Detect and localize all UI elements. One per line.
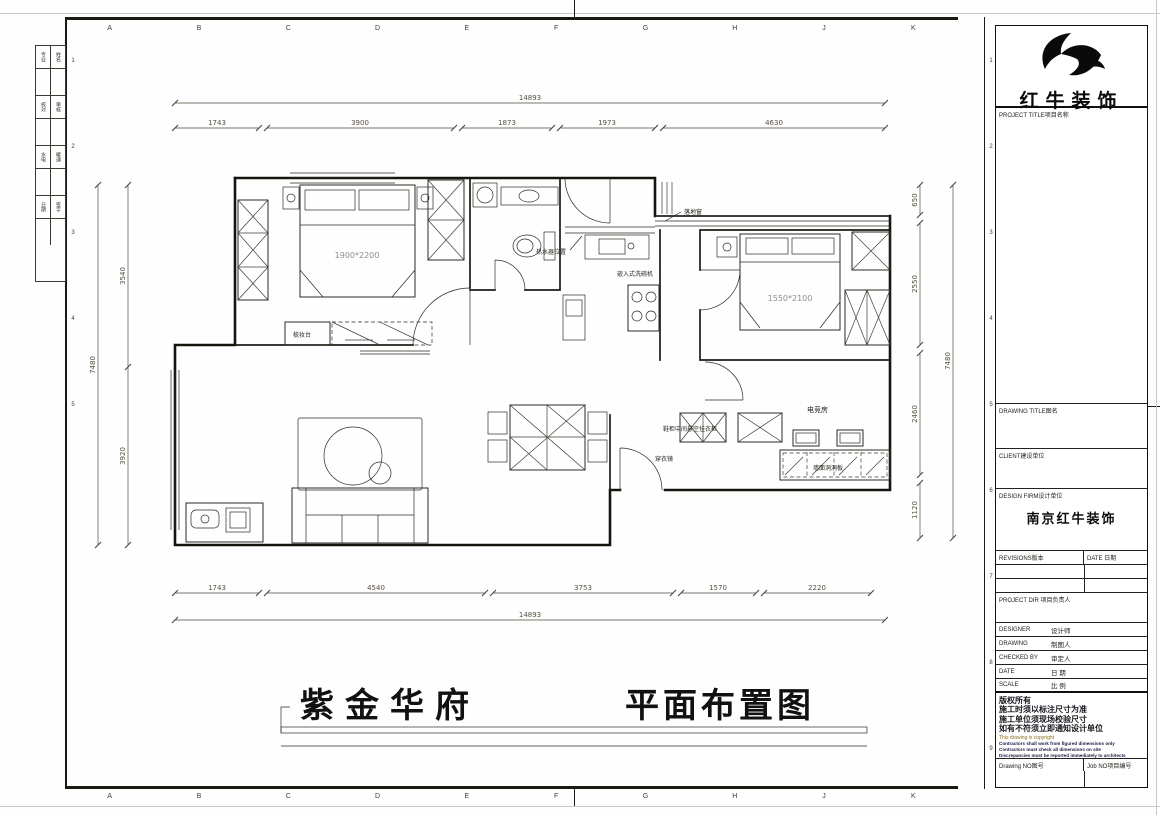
scale-label-cn: 比 例 <box>1051 680 1066 690</box>
bed-master <box>300 185 415 297</box>
dim: 4540 <box>367 584 385 592</box>
grid-number: 6 <box>987 488 995 494</box>
dim: 1120 <box>911 501 919 519</box>
drawing-sheet: A B C D E F G H J K A B C D E F G H J K … <box>0 0 1160 815</box>
living-room <box>186 418 428 543</box>
grid-number: 2 <box>987 144 995 150</box>
strip-cell-empty <box>51 169 65 195</box>
sheet-titles: 紫金华府 平面布置图 <box>281 686 867 746</box>
dresser: 梳妆台 <box>285 322 432 354</box>
frame-right-border <box>984 17 985 789</box>
strip-cell: 审核 <box>51 96 65 118</box>
drawing-no-label: Drawing NO图号 <box>996 759 1084 771</box>
pegboard-label: 墙面洞洞板 <box>813 464 843 472</box>
shoe-cabinet-label: 鞋柜中间悬空挂衣柜 <box>663 425 717 433</box>
mirror-label: 穿衣镜 <box>655 455 673 463</box>
top-shadow-line <box>0 13 1160 14</box>
scale-label-en: SCALE <box>996 682 1051 688</box>
note-cn: 施工时须以标注尺寸为准 <box>999 705 1145 714</box>
kitchen: 热水器位置 嵌入式洗碗机 <box>536 227 659 340</box>
dim-left-total: 7480 <box>89 356 97 374</box>
grid-letter: C <box>244 790 333 803</box>
drawing-label-en: DRAWING <box>996 641 1051 647</box>
bed-master-size: 1900*2200 <box>335 251 380 260</box>
frame-bottom-border <box>65 786 958 789</box>
signature-strip: 专业姓名 校对审核 水电暖通 日期签字 <box>35 45 66 282</box>
dims-right: 650 2550 2460 1120 7480 <box>911 182 956 541</box>
drawing-row: DRAWING 制图人 <box>996 637 1147 651</box>
grid-letter: J <box>779 790 868 803</box>
revisions-table: REVISIONS版本 DATE 日期 <box>996 551 1147 593</box>
main-title-right: 平面布置图 <box>625 686 815 726</box>
client-section: CLIENT建设单位 <box>996 449 1147 489</box>
dim: 3920 <box>119 447 127 465</box>
dim: 2550 <box>911 275 919 293</box>
dresser-label: 梳妆台 <box>293 331 311 339</box>
strip-cell: 专业 <box>36 46 51 68</box>
grid-number: 4 <box>987 316 995 322</box>
door-arcs <box>413 178 743 490</box>
rug <box>298 418 422 490</box>
revision-cell-empty <box>996 565 1085 578</box>
dim: 3753 <box>574 584 592 592</box>
dim: 1570 <box>709 584 727 592</box>
strip-cell-empty <box>36 119 51 145</box>
dim-bottom-total: 14893 <box>519 611 541 619</box>
kitchen-counter <box>585 235 649 259</box>
checked-label-en: CHECKED BY <box>996 655 1051 661</box>
second-bedroom: 1550*2100 <box>717 232 890 345</box>
dim: 2220 <box>808 584 826 592</box>
dim: 1873 <box>498 119 516 127</box>
window-lines <box>171 173 890 530</box>
title-underline-bar <box>281 727 867 733</box>
coffee-table-round <box>324 427 382 485</box>
scale-row: SCALE 比 例 <box>996 679 1147 693</box>
note-en: Contractors must check all dimensions on… <box>999 747 1133 753</box>
page-edge-line <box>1156 0 1157 815</box>
dims-bottom: 1743 4540 3753 1570 2220 14893 <box>172 584 888 623</box>
wardrobe-master-2 <box>428 180 464 260</box>
grid-number: 9 <box>987 746 995 752</box>
strip-cell: 校对 <box>36 96 51 118</box>
dim: 4630 <box>765 119 783 127</box>
dim-top-total: 14893 <box>519 94 541 102</box>
water-heater-leader <box>570 236 582 250</box>
project-dir-section: PROJECT DIR 项目负责人 <box>996 593 1147 623</box>
note-en: Contractors shall work from figured dime… <box>999 741 1133 747</box>
revision-cell-empty <box>996 579 1085 592</box>
sofa <box>292 488 428 543</box>
grid-letter: A <box>65 790 154 803</box>
brand-section: 红牛装饰 <box>996 26 1147 108</box>
grid-number: 7 <box>987 574 995 580</box>
designer-row: DESIGNER 设计师 <box>996 623 1147 637</box>
strip-cell: 签字 <box>51 196 65 218</box>
grid-letter: K <box>869 790 958 803</box>
dims-left: 3540 3920 7480 <box>89 182 131 548</box>
strip-cell-empty <box>51 219 65 245</box>
desk-chair <box>793 430 819 446</box>
note-en: Discrepancies must be reported immediate… <box>999 754 1133 760</box>
redbull-logo-icon <box>1027 29 1117 79</box>
dining-area <box>488 405 607 470</box>
date-row: DATE 日 期 <box>996 665 1147 679</box>
job-no-label: Job NO项目编号 <box>1084 759 1131 771</box>
wardrobe-second <box>845 290 890 345</box>
dim: 1973 <box>598 119 616 127</box>
design-firm-value: 南京红牛装饰 <box>996 508 1147 527</box>
note-cn: 如有不符须立即通知设计单位 <box>999 724 1145 733</box>
project-title-label: PROJECT TITLE项目名称 <box>996 108 1147 119</box>
bottom-shadow-line <box>0 806 1160 807</box>
note-cn: 施工单位须现场校验尺寸 <box>999 715 1145 724</box>
strip-cell-empty <box>36 69 51 95</box>
grid-letter: E <box>422 790 511 803</box>
grid-number: 5 <box>987 402 995 408</box>
top-center-tick <box>574 0 575 17</box>
strip-cell: 日期 <box>36 196 51 218</box>
checked-row: CHECKED BY 审定人 <box>996 651 1147 665</box>
dim: 1743 <box>208 119 226 127</box>
revisions-label: REVISIONS版本 <box>996 551 1084 564</box>
dishwasher-label: 嵌入式洗碗机 <box>617 270 653 278</box>
grid-letter: G <box>601 790 690 803</box>
date-header-label: DATE 日期 <box>1084 551 1116 564</box>
date-label-cn: 日 期 <box>1051 667 1066 677</box>
washing-machine <box>473 183 497 207</box>
copyright-notes: 版权所有 施工时须以标注尺寸为准 施工单位须现场校验尺寸 如有不符须立即通知设计… <box>996 693 1147 759</box>
drawing-title-label: DRAWING TITLE图名 <box>996 404 1147 415</box>
strip-cell-empty <box>36 219 51 245</box>
dining-chair <box>488 412 507 434</box>
grid-number: 3 <box>987 230 995 236</box>
dim: 2460 <box>911 405 919 423</box>
esports-label: 电竞房 <box>807 405 828 414</box>
strip-cell: 姓名 <box>51 46 65 68</box>
grid-letter: F <box>511 790 600 803</box>
project-title-section: PROJECT TITLE项目名称 <box>996 108 1147 404</box>
dim: 650 <box>911 193 919 206</box>
client-label: CLIENT建设单位 <box>996 449 1147 460</box>
dining-chair <box>488 440 507 462</box>
design-firm-section: DESIGN FIRM设计单位 南京红牛装饰 <box>996 489 1147 551</box>
master-bedroom: 1900*2200 梳妆台 <box>238 180 464 354</box>
strip-cell: 水电 <box>36 146 51 168</box>
grid-letter: H <box>690 790 779 803</box>
esports-room: 电竞房 墙面洞洞板 <box>780 405 890 480</box>
strip-cell-empty <box>36 169 51 195</box>
dim: 3540 <box>119 267 127 285</box>
design-firm-label: DESIGN FIRM设计单位 <box>996 489 1147 500</box>
bed-second <box>740 234 840 330</box>
designer-label-en: DESIGNER <box>996 627 1051 633</box>
floor-plan: .w{fill:none;stroke:#15150f;stroke-width… <box>65 20 960 785</box>
exterior-walls <box>175 178 890 545</box>
stove <box>628 285 659 331</box>
dim: 1743 <box>208 584 226 592</box>
date-label-en: DATE <box>996 669 1051 675</box>
title-block: 红牛装饰 PROJECT TITLE项目名称 DRAWING TITLE图名 C… <box>995 25 1148 788</box>
water-heater-label: 热水器位置 <box>536 248 566 256</box>
bed-second-size: 1550*2100 <box>768 294 813 303</box>
drawing-no-value-empty <box>996 771 1085 788</box>
dim-right-total: 7480 <box>944 352 952 370</box>
main-title-left: 紫金华府 <box>300 686 480 726</box>
grid-letter: D <box>333 790 422 803</box>
grid-number: 1 <box>987 58 995 64</box>
desk-chair <box>837 430 863 446</box>
dim: 3900 <box>351 119 369 127</box>
grid-letters-bottom: A B C D E F G H J K <box>65 790 958 803</box>
drawing-label-cn: 制图人 <box>1051 639 1071 649</box>
checked-label-cn: 审定人 <box>1051 653 1071 663</box>
floor-window-label: 落地窗 <box>684 208 702 216</box>
strip-cell: 暖通 <box>51 146 65 168</box>
desk-pegboard: 墙面洞洞板 <box>780 450 890 480</box>
designer-label-cn: 设计师 <box>1051 625 1071 635</box>
side-table-round <box>369 462 391 484</box>
title-bracket <box>281 707 290 733</box>
strip-cell-empty <box>51 69 65 95</box>
drawing-title-section: DRAWING TITLE图名 <box>996 404 1147 449</box>
dining-chair <box>588 412 607 434</box>
grid-number: 8 <box>987 660 995 666</box>
tv-cabinet <box>186 503 263 542</box>
closet-top-right <box>852 232 890 270</box>
dims-top: 14893 1743 3900 1873 1973 4630 <box>172 94 888 131</box>
project-dir-label: PROJECT DIR 项目负责人 <box>996 593 1147 604</box>
wardrobe-master <box>238 200 268 300</box>
grid-letter: B <box>154 790 243 803</box>
dining-chair <box>588 440 607 462</box>
entry: 鞋柜中间悬空挂衣柜 穿衣镜 <box>655 413 782 463</box>
drawing-no-section: Drawing NO图号 Job NO项目编号 <box>996 759 1147 788</box>
right-center-tick <box>1148 406 1160 407</box>
strip-cell-empty <box>51 119 65 145</box>
note-copyright-en: This drawing is copyright <box>999 735 1145 741</box>
